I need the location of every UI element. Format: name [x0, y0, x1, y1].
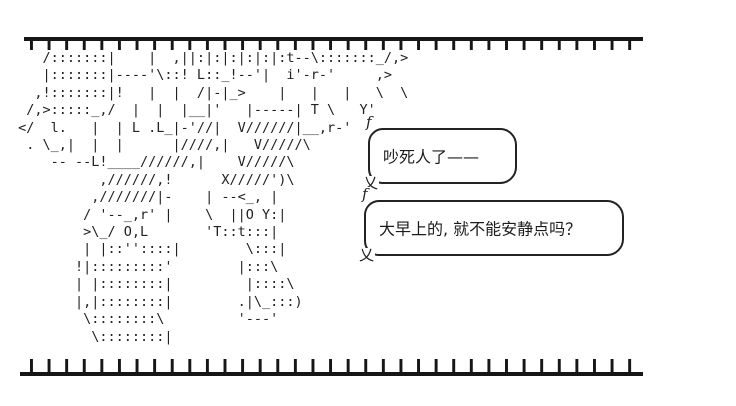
bubble-tail-top-icon: f [360, 187, 370, 202]
bubble-tail-bottom-icon: 乂 [358, 248, 375, 263]
ascii-art-character: /:::::::| | ,||:|:|:|:|:|:t--\:::::::_/,… [10, 50, 408, 346]
speech-bubble-1-text: 吵死人了—— [383, 144, 479, 168]
speech-bubble-2-text: 大早上的, 就不能安静点吗？ [379, 216, 581, 240]
speech-bubble-2: f 大早上的, 就不能安静点吗？ 乂 [364, 200, 624, 256]
aa-story-page: /:::::::| | ,||:|:|:|:|:|:t--\:::::::_/,… [0, 0, 736, 406]
bubble-tail-top-icon: f [364, 115, 374, 130]
speech-bubble-1: f 吵死人了—— 乂 [368, 128, 517, 184]
top-tick-border [24, 37, 643, 50]
bottom-tick-border [20, 359, 643, 376]
